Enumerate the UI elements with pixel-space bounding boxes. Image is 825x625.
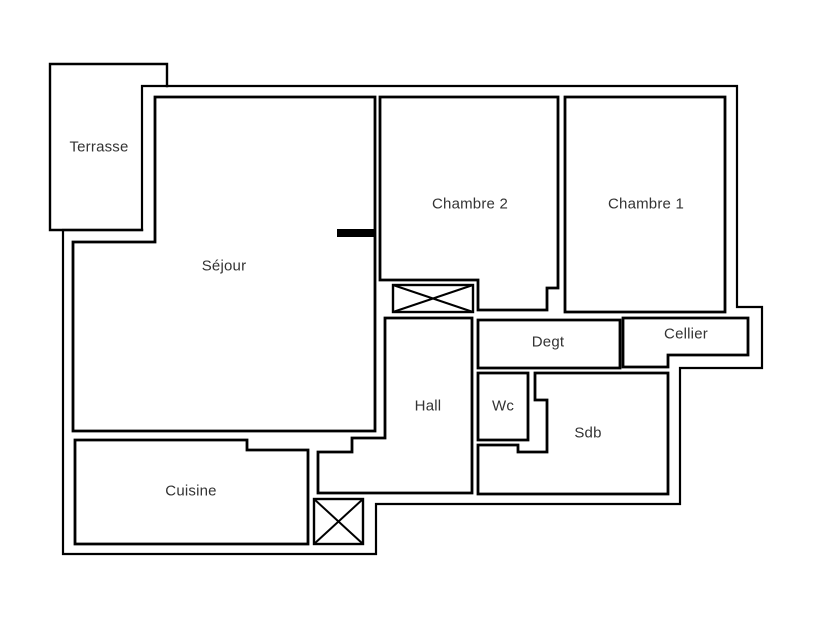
room-label-chambre2: Chambre 2 (432, 196, 508, 213)
room-label-cellier: Cellier (664, 326, 708, 343)
crossed-box-lower (314, 499, 363, 544)
floorplan-drawing (0, 0, 825, 625)
room-label-sejour: Séjour (202, 258, 247, 275)
room-label-hall: Hall (415, 398, 442, 415)
room-label-sdb: Sdb (574, 425, 601, 442)
room-label-wc: Wc (492, 398, 514, 415)
room-label-chambre1: Chambre 1 (608, 196, 684, 213)
floorplan-page: Terrasse Séjour Chambre 2 Chambre 1 Degt… (0, 0, 825, 625)
room-hall-outline (318, 318, 472, 493)
room-sdb-outline (478, 373, 668, 494)
room-label-degt: Degt (532, 334, 565, 351)
room-label-cuisine: Cuisine (165, 483, 216, 500)
room-label-terrasse: Terrasse (69, 139, 128, 156)
wall-opening-marker (337, 229, 375, 237)
crossed-box-upper (393, 285, 473, 312)
